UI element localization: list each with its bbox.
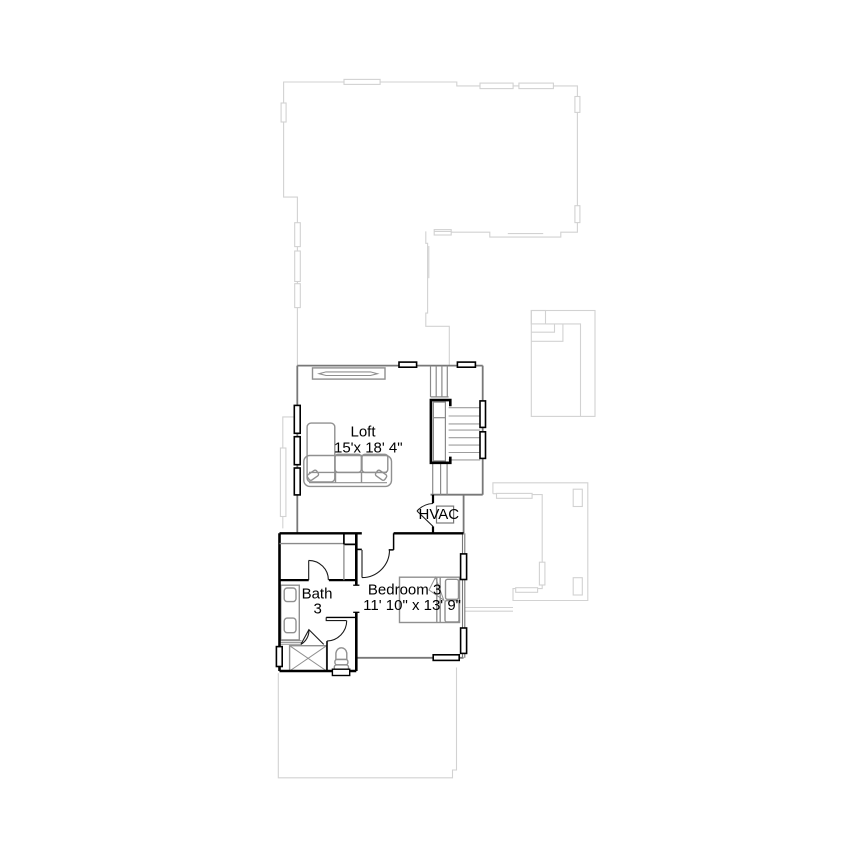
svg-text:15'x 18' 4": 15'x 18' 4" (334, 440, 403, 457)
svg-text:Loft: Loft (350, 424, 376, 441)
svg-text:3: 3 (314, 600, 322, 617)
svg-text:Bedroom 3: Bedroom 3 (368, 582, 441, 599)
svg-text:11' 10" x 13' 9": 11' 10" x 13' 9" (363, 597, 461, 614)
svg-text:HVAC: HVAC (419, 506, 460, 523)
